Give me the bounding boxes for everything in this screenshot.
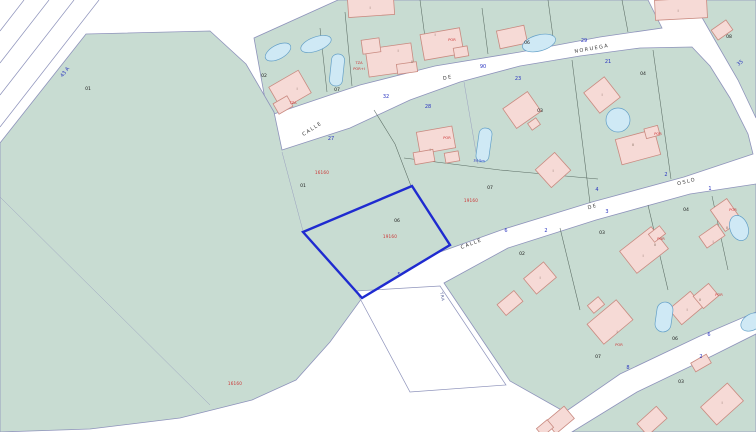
portal-number-label: 32	[383, 94, 389, 100]
portal-number-label: 4	[595, 187, 598, 193]
floor-count-label: I	[552, 168, 553, 173]
floor-count-label: II	[726, 225, 728, 230]
cadastral-map: CALLEDENORUEGACALLEDEOSLOTRA 27329028232…	[0, 0, 756, 432]
portal-number-label: 6	[504, 228, 507, 234]
floor-count-label: II	[654, 242, 656, 247]
portal-number-label: 29	[581, 38, 587, 44]
parcel-id-label: 04	[640, 71, 646, 77]
parcel-id-label: 01	[300, 183, 306, 189]
portal-number-label: 21	[605, 59, 611, 65]
building-annotation-label: TZA	[288, 101, 297, 105]
building-annotation-label: TZA	[354, 61, 363, 65]
parcel-id-label: 07	[595, 354, 601, 360]
parcel-id-label: 03	[599, 230, 605, 236]
building	[453, 46, 469, 58]
street-name-label: DE	[442, 74, 453, 82]
floor-count-label: I	[601, 92, 602, 97]
parcel-id-label: 06	[524, 40, 530, 46]
building-annotation-label: POR	[443, 136, 451, 140]
cadastral-code-label: 16160	[315, 170, 329, 175]
pool-circular	[606, 108, 630, 132]
floor-count-label: I	[686, 307, 687, 312]
road-edge-line	[0, 0, 49, 63]
parcel-id-label: 07	[487, 185, 493, 191]
portal-number-label: 23	[515, 76, 521, 82]
building-annotation-label: POR	[615, 343, 623, 347]
building-annotation-label: POR	[729, 208, 737, 212]
parcel-id-label: 06	[394, 218, 400, 224]
building-annotation-label: POR	[654, 132, 662, 136]
cadastral-code-label: 19160	[464, 198, 478, 203]
building	[444, 151, 460, 163]
building	[655, 0, 708, 20]
building-annotation-label: POR	[715, 293, 723, 297]
building-annotation-label: POR	[448, 38, 456, 42]
floor-count-label: I	[429, 147, 430, 152]
floor-count-label: I	[721, 400, 722, 405]
portal-number-label: 2	[699, 354, 702, 360]
parcel-id-label: 03	[678, 379, 684, 385]
floor-count-label: I	[397, 48, 398, 53]
parcel-id-label: 03	[537, 108, 543, 114]
building-annotation-label: POR+I	[353, 67, 365, 71]
floor-count-label: I	[296, 86, 297, 91]
portal-number-label: 5	[397, 272, 400, 278]
floor-count-label: I	[369, 5, 370, 10]
parcel-id-label: 04	[683, 207, 689, 213]
floor-count-label: I	[677, 8, 678, 13]
street-name-label: DE	[587, 203, 598, 212]
street-name-label: CALLE	[301, 120, 323, 137]
portal-number-label: 3	[605, 209, 608, 215]
floor-count-label: I	[712, 239, 713, 244]
portal-number-label: 28	[425, 104, 431, 110]
portal-number-label: 6	[707, 332, 710, 338]
floor-count-label: I	[642, 253, 643, 258]
portal-number-label: 8	[626, 365, 629, 371]
road-edge-line	[0, 0, 24, 31]
portal-number-label: 34.5m	[473, 159, 485, 164]
building	[361, 38, 381, 54]
cadastral-code-label: 19160	[383, 234, 397, 239]
floor-count-label: II	[699, 297, 701, 302]
portal-number-label: 1	[708, 186, 711, 192]
building-annotation-label: POR	[657, 237, 665, 241]
portal-number-label: 90	[480, 64, 486, 70]
parcel-id-label: 02	[519, 251, 525, 257]
floor-count-label: I	[539, 275, 540, 280]
cadastral-map-viewport: CALLEDENORUEGACALLEDEOSLOTRA 27329028232…	[0, 0, 756, 432]
floor-count-label: I	[616, 329, 617, 334]
floor-count-label: II	[632, 142, 634, 147]
portal-number-label: 2	[664, 172, 667, 178]
parcel-id-label: 06	[672, 336, 678, 342]
floor-count-label: II	[411, 59, 413, 64]
parcel-id-label: 01	[85, 86, 91, 92]
portal-number-label: 27	[328, 136, 334, 142]
parcel-id-label: 08	[726, 34, 732, 40]
cadastral-code-label: 16160	[228, 381, 242, 386]
floor-count-label: I	[434, 32, 435, 37]
building	[347, 0, 394, 18]
parcel-id-label: 07	[334, 87, 340, 93]
portal-number-label: 2	[544, 228, 547, 234]
parcel-id-label: 02	[261, 73, 267, 79]
